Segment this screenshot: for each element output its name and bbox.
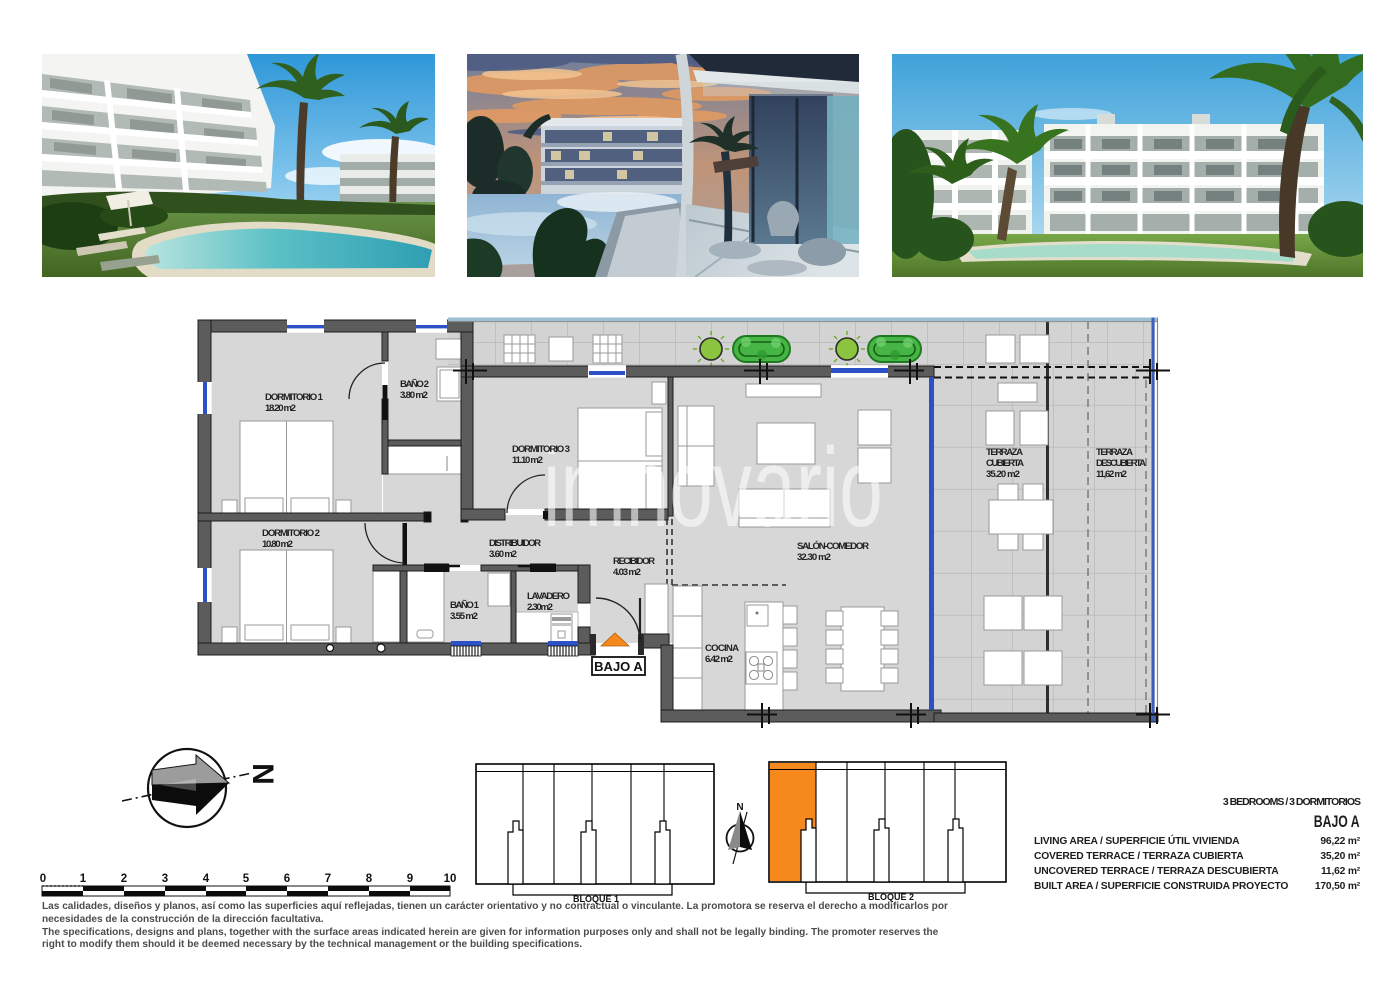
svg-text:11,62 m2: 11,62 m2 [1096,469,1127,480]
svg-text:CUBIERTA: CUBIERTA [986,458,1024,469]
svg-text:6.42 m2: 6.42 m2 [705,654,733,665]
svg-text:RECIBIDOR: RECIBIDOR [613,556,655,567]
svg-text:1: 1 [80,873,87,885]
svg-text:TERRAZA: TERRAZA [1096,447,1133,458]
svg-text:N: N [736,802,743,813]
svg-text:DESCUBIERTA: DESCUBIERTA [1096,458,1146,469]
svg-text:3: 3 [162,873,168,885]
svg-text:DORMITORIO 3: DORMITORIO 3 [512,444,570,455]
svg-text:10.80 m2: 10.80 m2 [262,539,293,550]
svg-text:2: 2 [121,873,127,885]
svg-text:4: 4 [203,873,210,885]
svg-text:10: 10 [444,873,457,885]
svg-text:0: 0 [40,873,46,885]
svg-text:8: 8 [366,873,373,885]
svg-text:4.03 m2: 4.03 m2 [613,567,641,578]
svg-text:BAÑO 2: BAÑO 2 [400,379,429,390]
svg-text:COCINA: COCINA [705,643,739,654]
svg-text:DORMITORIO 2: DORMITORIO 2 [262,528,320,539]
svg-text:TERRAZA: TERRAZA [986,447,1023,458]
svg-text:35.20 m2: 35.20 m2 [986,469,1020,480]
svg-text:BAÑO 1: BAÑO 1 [450,600,480,611]
svg-text:9: 9 [407,873,413,885]
svg-text:SALÓN-COMEDOR: SALÓN-COMEDOR [797,540,869,552]
svg-text:DORMITORIO 1: DORMITORIO 1 [265,392,324,403]
svg-text:18.20 m2: 18.20 m2 [265,403,296,414]
svg-text:BAJO A: BAJO A [594,659,643,674]
svg-text:N: N [246,763,279,785]
svg-text:imnovario: imnovario [543,425,883,550]
svg-text:11.10 m2: 11.10 m2 [512,455,543,466]
svg-text:3.80 m2: 3.80 m2 [400,390,428,401]
svg-text:DISTRIBUIDOR: DISTRIBUIDOR [489,538,541,549]
svg-text:3.55 m2: 3.55 m2 [450,611,478,622]
svg-text:7: 7 [325,873,331,885]
svg-text:5: 5 [243,873,250,885]
svg-text:6: 6 [284,873,290,885]
svg-text:2.30m2: 2.30m2 [527,602,553,613]
svg-text:3.60 m2: 3.60 m2 [489,549,517,560]
svg-text:LAVADERO: LAVADERO [527,591,571,602]
svg-text:32.30 m2: 32.30 m2 [797,552,831,563]
